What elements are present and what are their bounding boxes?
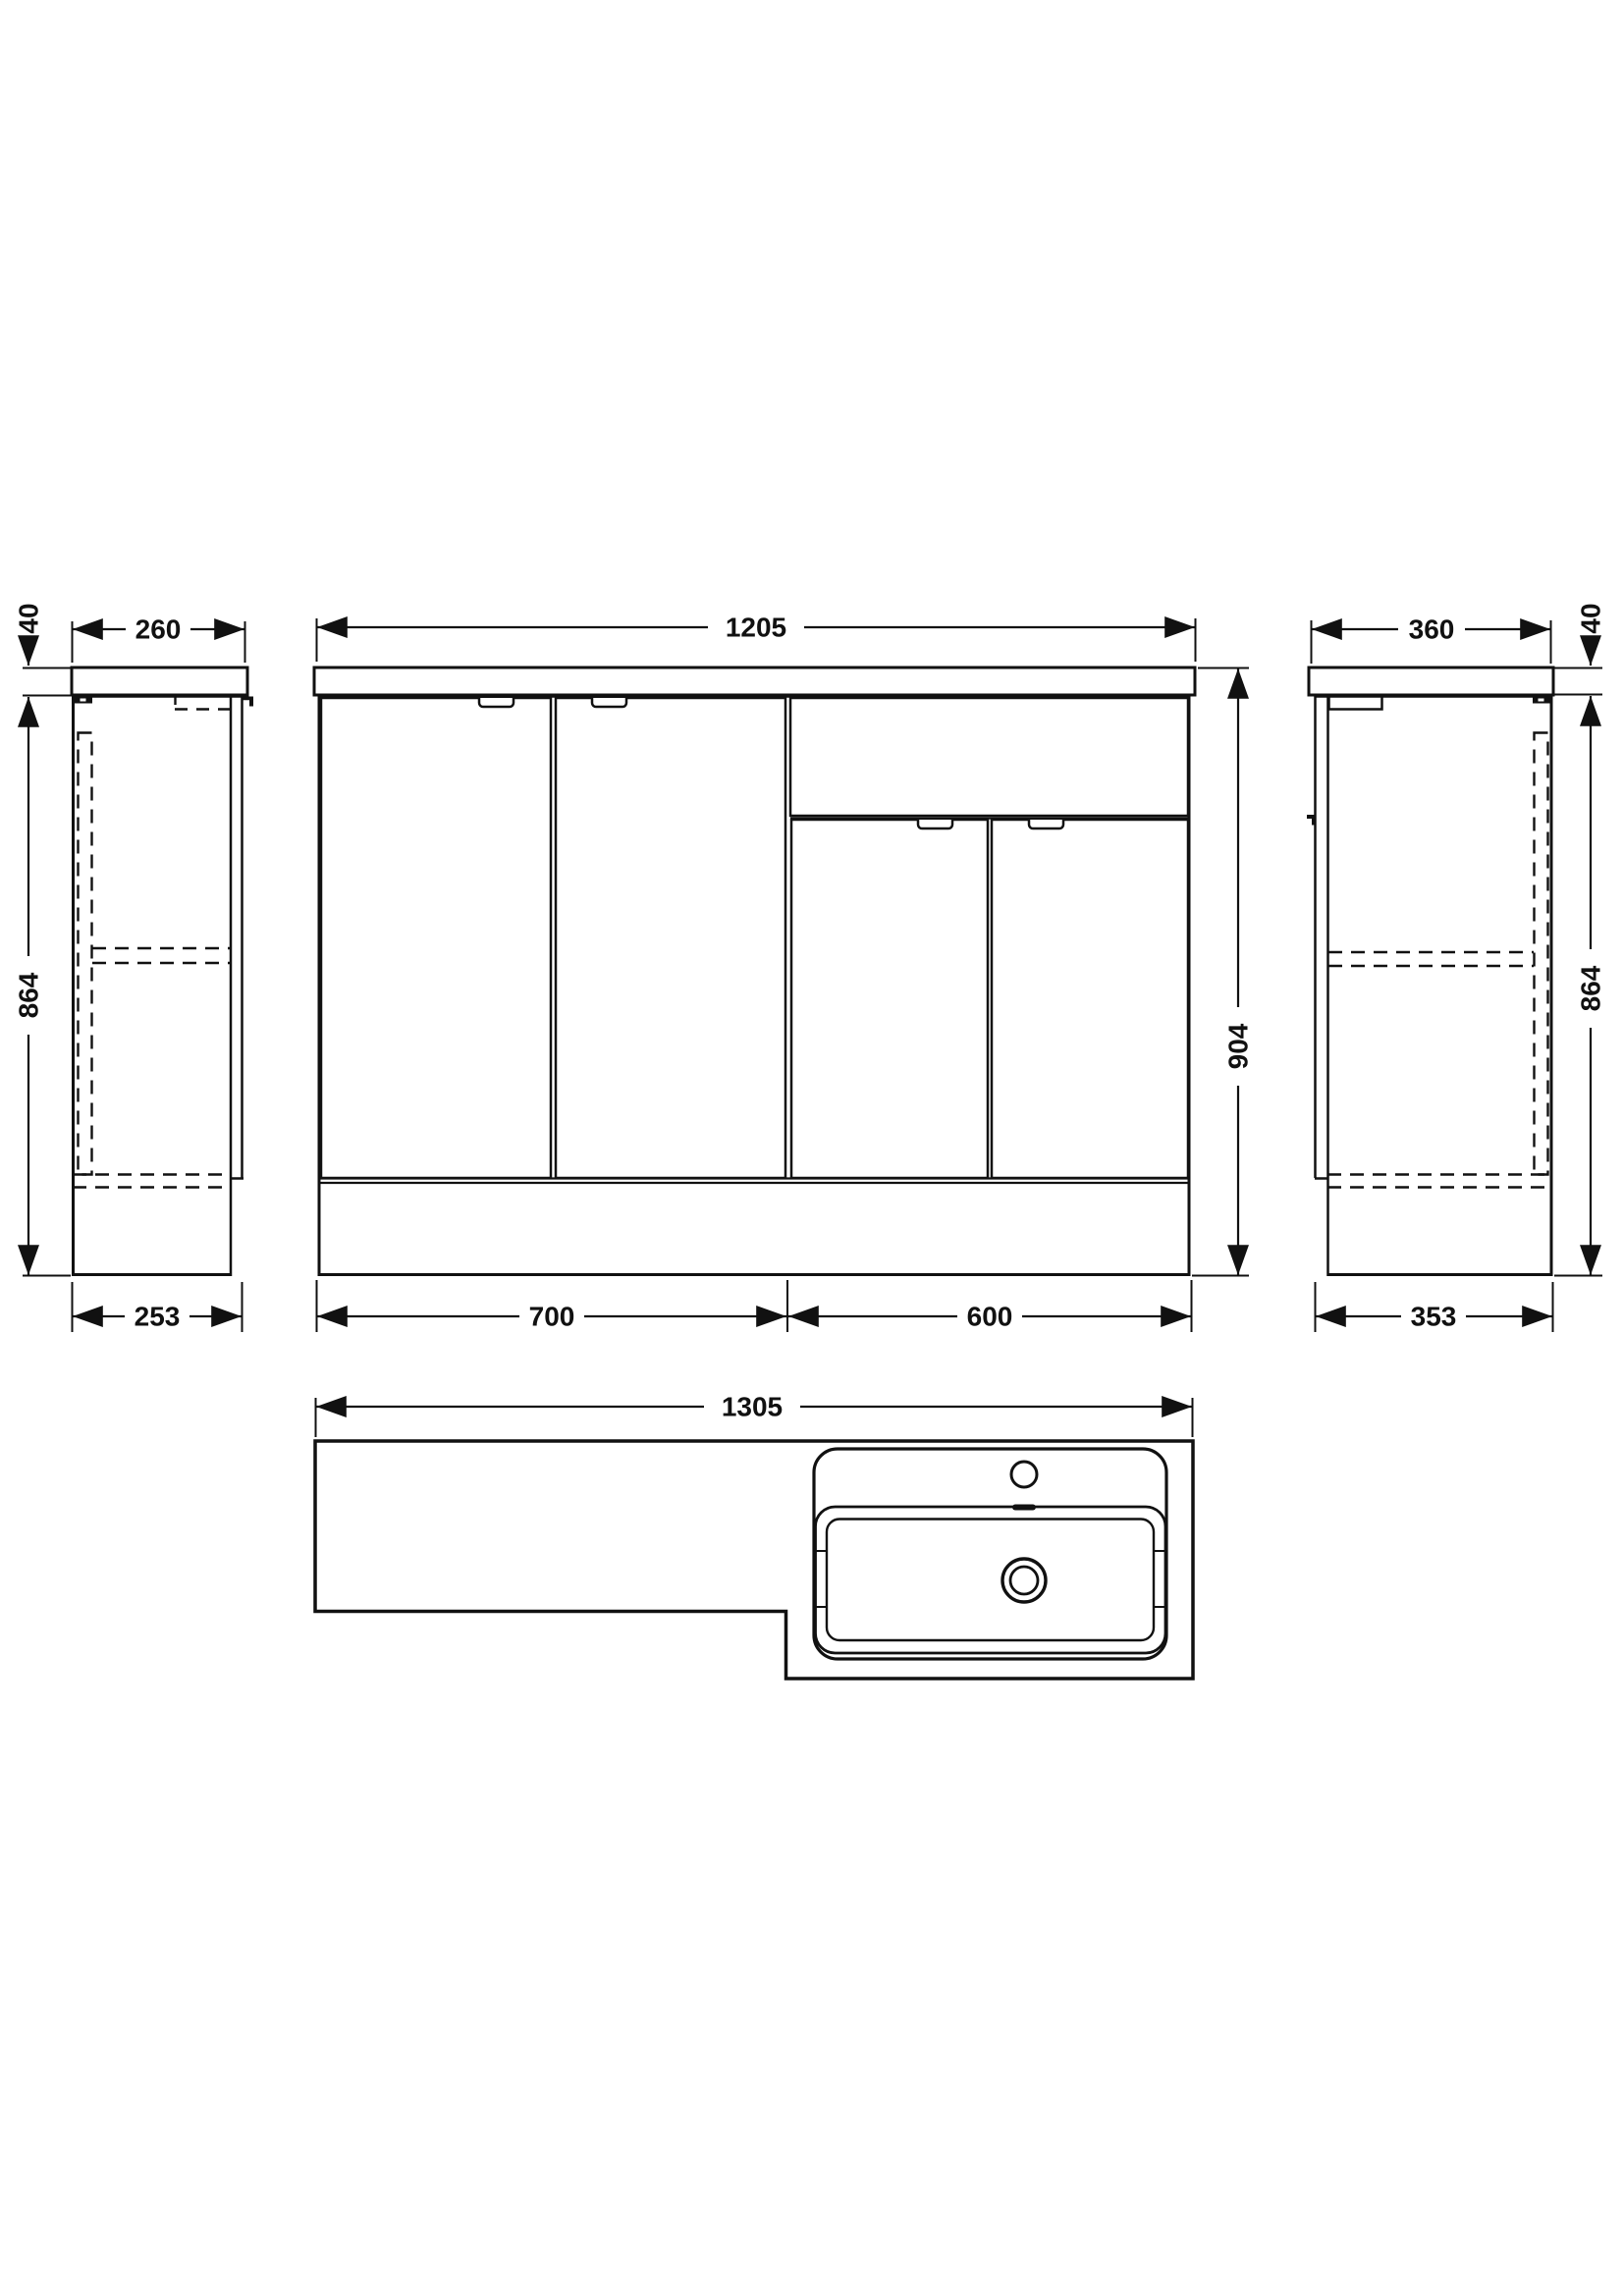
right-side-hidden-upright xyxy=(1535,733,1548,1175)
front-door-left-1 xyxy=(321,698,551,1178)
dim-label-left-height: 864 xyxy=(14,972,44,1018)
dimensions: 40 260 864 253 1205 904 700 600 360 40 8… xyxy=(14,603,1606,1437)
left-side-handle-profile xyxy=(243,697,254,707)
right-side-view xyxy=(1307,667,1553,1276)
dimension-lines xyxy=(28,627,1591,1407)
front-handle-notch-3 xyxy=(918,820,952,828)
dim-label-front-height: 904 xyxy=(1223,1023,1254,1069)
dim-label-front-left-unit-width: 700 xyxy=(529,1302,575,1332)
dim-label-front-right-unit-width: 600 xyxy=(967,1302,1013,1332)
drawing-page: 40 260 864 253 1205 904 700 600 360 40 8… xyxy=(0,0,1623,2296)
left-side-hidden-upright xyxy=(79,733,92,1175)
technical-drawing-canvas: 40 260 864 253 1205 904 700 600 360 40 8… xyxy=(0,0,1623,2296)
left-side-countertop xyxy=(72,667,247,695)
right-side-hinge-slot xyxy=(1539,699,1544,702)
front-handle-notch-2 xyxy=(592,698,626,707)
plan-countertop-outline xyxy=(315,1441,1193,1679)
right-side-handle-profile xyxy=(1307,815,1316,826)
dim-label-right-top-depth: 360 xyxy=(1409,614,1455,645)
front-handle-notch-4 xyxy=(1029,820,1063,828)
dim-label-front-width: 1205 xyxy=(726,613,786,643)
front-handle-notch-1 xyxy=(479,698,514,707)
dim-label-left-bottom-depth: 253 xyxy=(135,1302,181,1332)
basin-overflow-slot xyxy=(1012,1505,1036,1511)
dim-label-left-counter-thickness: 40 xyxy=(14,603,44,633)
front-view xyxy=(314,667,1195,1276)
dimension-labels: 40 260 864 253 1205 904 700 600 360 40 8… xyxy=(14,603,1606,1421)
front-blind-panel xyxy=(790,698,1188,816)
plan-view xyxy=(315,1441,1193,1679)
left-side-view xyxy=(72,667,253,1276)
front-countertop xyxy=(314,667,1195,695)
dim-label-right-height: 864 xyxy=(1576,965,1606,1011)
dim-label-plan-width: 1305 xyxy=(722,1392,783,1422)
dim-label-right-counter-thickness: 40 xyxy=(1576,603,1606,633)
front-door-left-2 xyxy=(556,698,785,1178)
front-door-right-2 xyxy=(992,820,1188,1178)
extension-lines xyxy=(23,618,1602,1437)
dimension-text-masks xyxy=(125,614,1466,1420)
dim-label-right-bottom-depth: 353 xyxy=(1411,1302,1457,1332)
front-door-right-1 xyxy=(791,820,988,1178)
right-side-top-rail xyxy=(1329,697,1382,710)
right-side-countertop xyxy=(1309,667,1553,695)
dim-label-left-top-depth: 260 xyxy=(135,614,182,645)
left-side-hinge-slot xyxy=(81,699,86,702)
